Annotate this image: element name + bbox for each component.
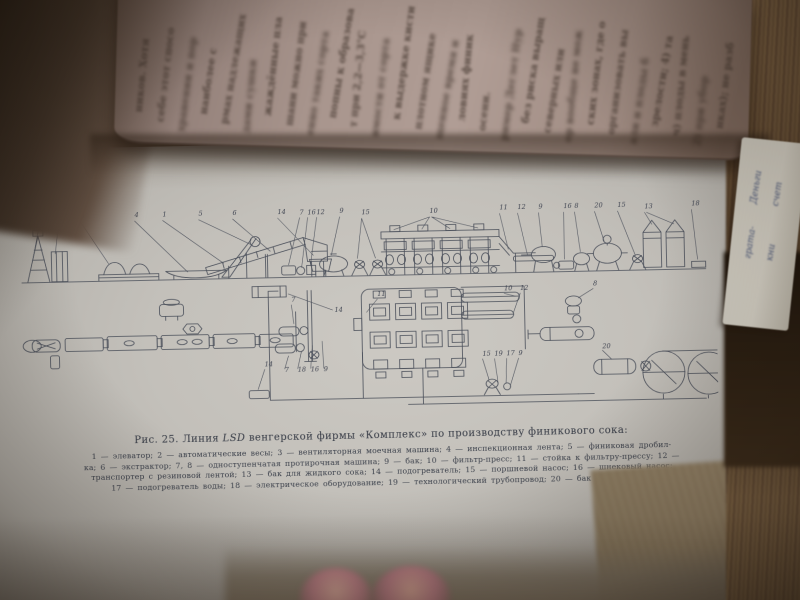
background-text-fragment: ор вообще не мож [562, 29, 585, 142]
diagram-label: 12 [316, 208, 324, 216]
diagram-label: 9 [518, 349, 522, 357]
diagram-label: 12 [517, 203, 525, 211]
scales-detail [56, 252, 63, 282]
background-text-fragment: хранении и пор [175, 36, 199, 132]
background-text-fragment: нках); не разб [713, 42, 736, 130]
background-text-fragment: дами сушки [240, 59, 259, 134]
background-text-fragment: себе этот спосо [154, 27, 177, 123]
diagram-label: 5 [198, 210, 202, 218]
diagram-label: 19 [494, 349, 502, 357]
background-text-fragment: ских зонах, где о [584, 21, 608, 126]
background-text-fragment: организовать вы [605, 29, 631, 136]
diagram-label: 18 [691, 199, 699, 207]
diagram-label: 7 [291, 296, 296, 304]
diagram-label: 1 [162, 210, 166, 218]
diagram-label: 10 [429, 207, 437, 215]
diagram-label: 10 [504, 284, 512, 292]
diagram-label: 11 [499, 203, 507, 211]
background-text-fragment: енно таких сорта [304, 30, 332, 136]
scales [51, 252, 68, 282]
diagram-label: 9 [339, 207, 343, 215]
diagram-label: 6 [232, 209, 236, 217]
elevator-frame [27, 236, 50, 282]
background-text-fragment: имости от сорта [369, 37, 392, 137]
diagram-label: 8 [593, 279, 597, 287]
gutter-shadow [90, 134, 770, 176]
diagram-label: 13 [644, 202, 652, 210]
diagram-label: 14 [277, 208, 285, 216]
agitator-tank [587, 235, 628, 271]
background-text-fragment: ников. Хотя [133, 38, 152, 113]
book-photo: 12341561471612915101112916820151318 [0, 0, 800, 600]
plan-view: 714111012814718169151917920 [22, 277, 719, 413]
plan-upper-units [159, 299, 202, 335]
electrical-box [692, 261, 706, 267]
diagram-label: 16 [311, 365, 319, 373]
background-text-fragment: щенное время и [433, 39, 462, 140]
caption-prefix: Рис. 25. Линия [134, 433, 222, 446]
diagram-label: 9 [324, 365, 328, 373]
bookmark-text-fragment: грата- [743, 226, 758, 260]
diagram-label: 11 [377, 290, 385, 298]
plan-conveyor [23, 333, 294, 370]
diagram-label: 14 [265, 360, 273, 368]
diagram-label: 15 [482, 350, 490, 358]
background-text-fragment: жаждённые пла [262, 16, 285, 117]
pump-wheel [297, 267, 305, 275]
background-text-fragment: плотном ящике [412, 32, 438, 130]
washer-drums [103, 262, 149, 275]
rubber-belt [513, 255, 553, 261]
diagram-label: 20 [601, 342, 610, 350]
juice-silos [643, 220, 685, 268]
plan-filter-press [353, 286, 521, 378]
washer-body [99, 274, 159, 281]
diagram-label: 16 [563, 202, 571, 210]
diagram-label: 14 [334, 306, 342, 314]
diagram-label: 7 [285, 366, 290, 374]
plan-transfer-cluster [247, 285, 320, 398]
diagram-label: 16 [307, 208, 315, 216]
background-text-fragment: наиболее с [197, 47, 219, 115]
background-text-fragment: али и плоды б [627, 57, 652, 145]
bookmark-text-fragment: счет [771, 181, 785, 207]
press-discharge [499, 236, 536, 273]
bookmark-text-fragment: Деньги [749, 170, 764, 205]
diagram-label: 15 [361, 208, 369, 216]
tank2-feet [521, 254, 553, 272]
piston-pumps [352, 260, 386, 276]
diagram-label: 18 [298, 366, 306, 374]
diagram-label: 20 [593, 201, 602, 209]
pulper-machine [282, 266, 296, 275]
diagram-label: 15 [617, 201, 625, 209]
diagram-label: 12 [520, 284, 528, 292]
bookmark-text-fragment: кни [765, 243, 778, 261]
screw-pump [559, 261, 574, 269]
diagram-label: 9 [538, 203, 542, 211]
filter-press-elevation [381, 223, 500, 274]
background-text-fragment: шани можно при [283, 21, 309, 127]
caption-lsd: LSD [223, 433, 246, 444]
background-text-fragment: к выдержке кисти [391, 5, 418, 120]
background-text-fragment: ример Деглет Нур [498, 28, 525, 141]
plan-right-units [482, 293, 719, 399]
background-text-fragment: осени. [476, 91, 492, 131]
vessel-8 [573, 253, 589, 265]
diagram-label: 7 [299, 209, 304, 217]
diagram-label: 8 [574, 202, 578, 210]
diagram-label: 17 [506, 349, 515, 357]
